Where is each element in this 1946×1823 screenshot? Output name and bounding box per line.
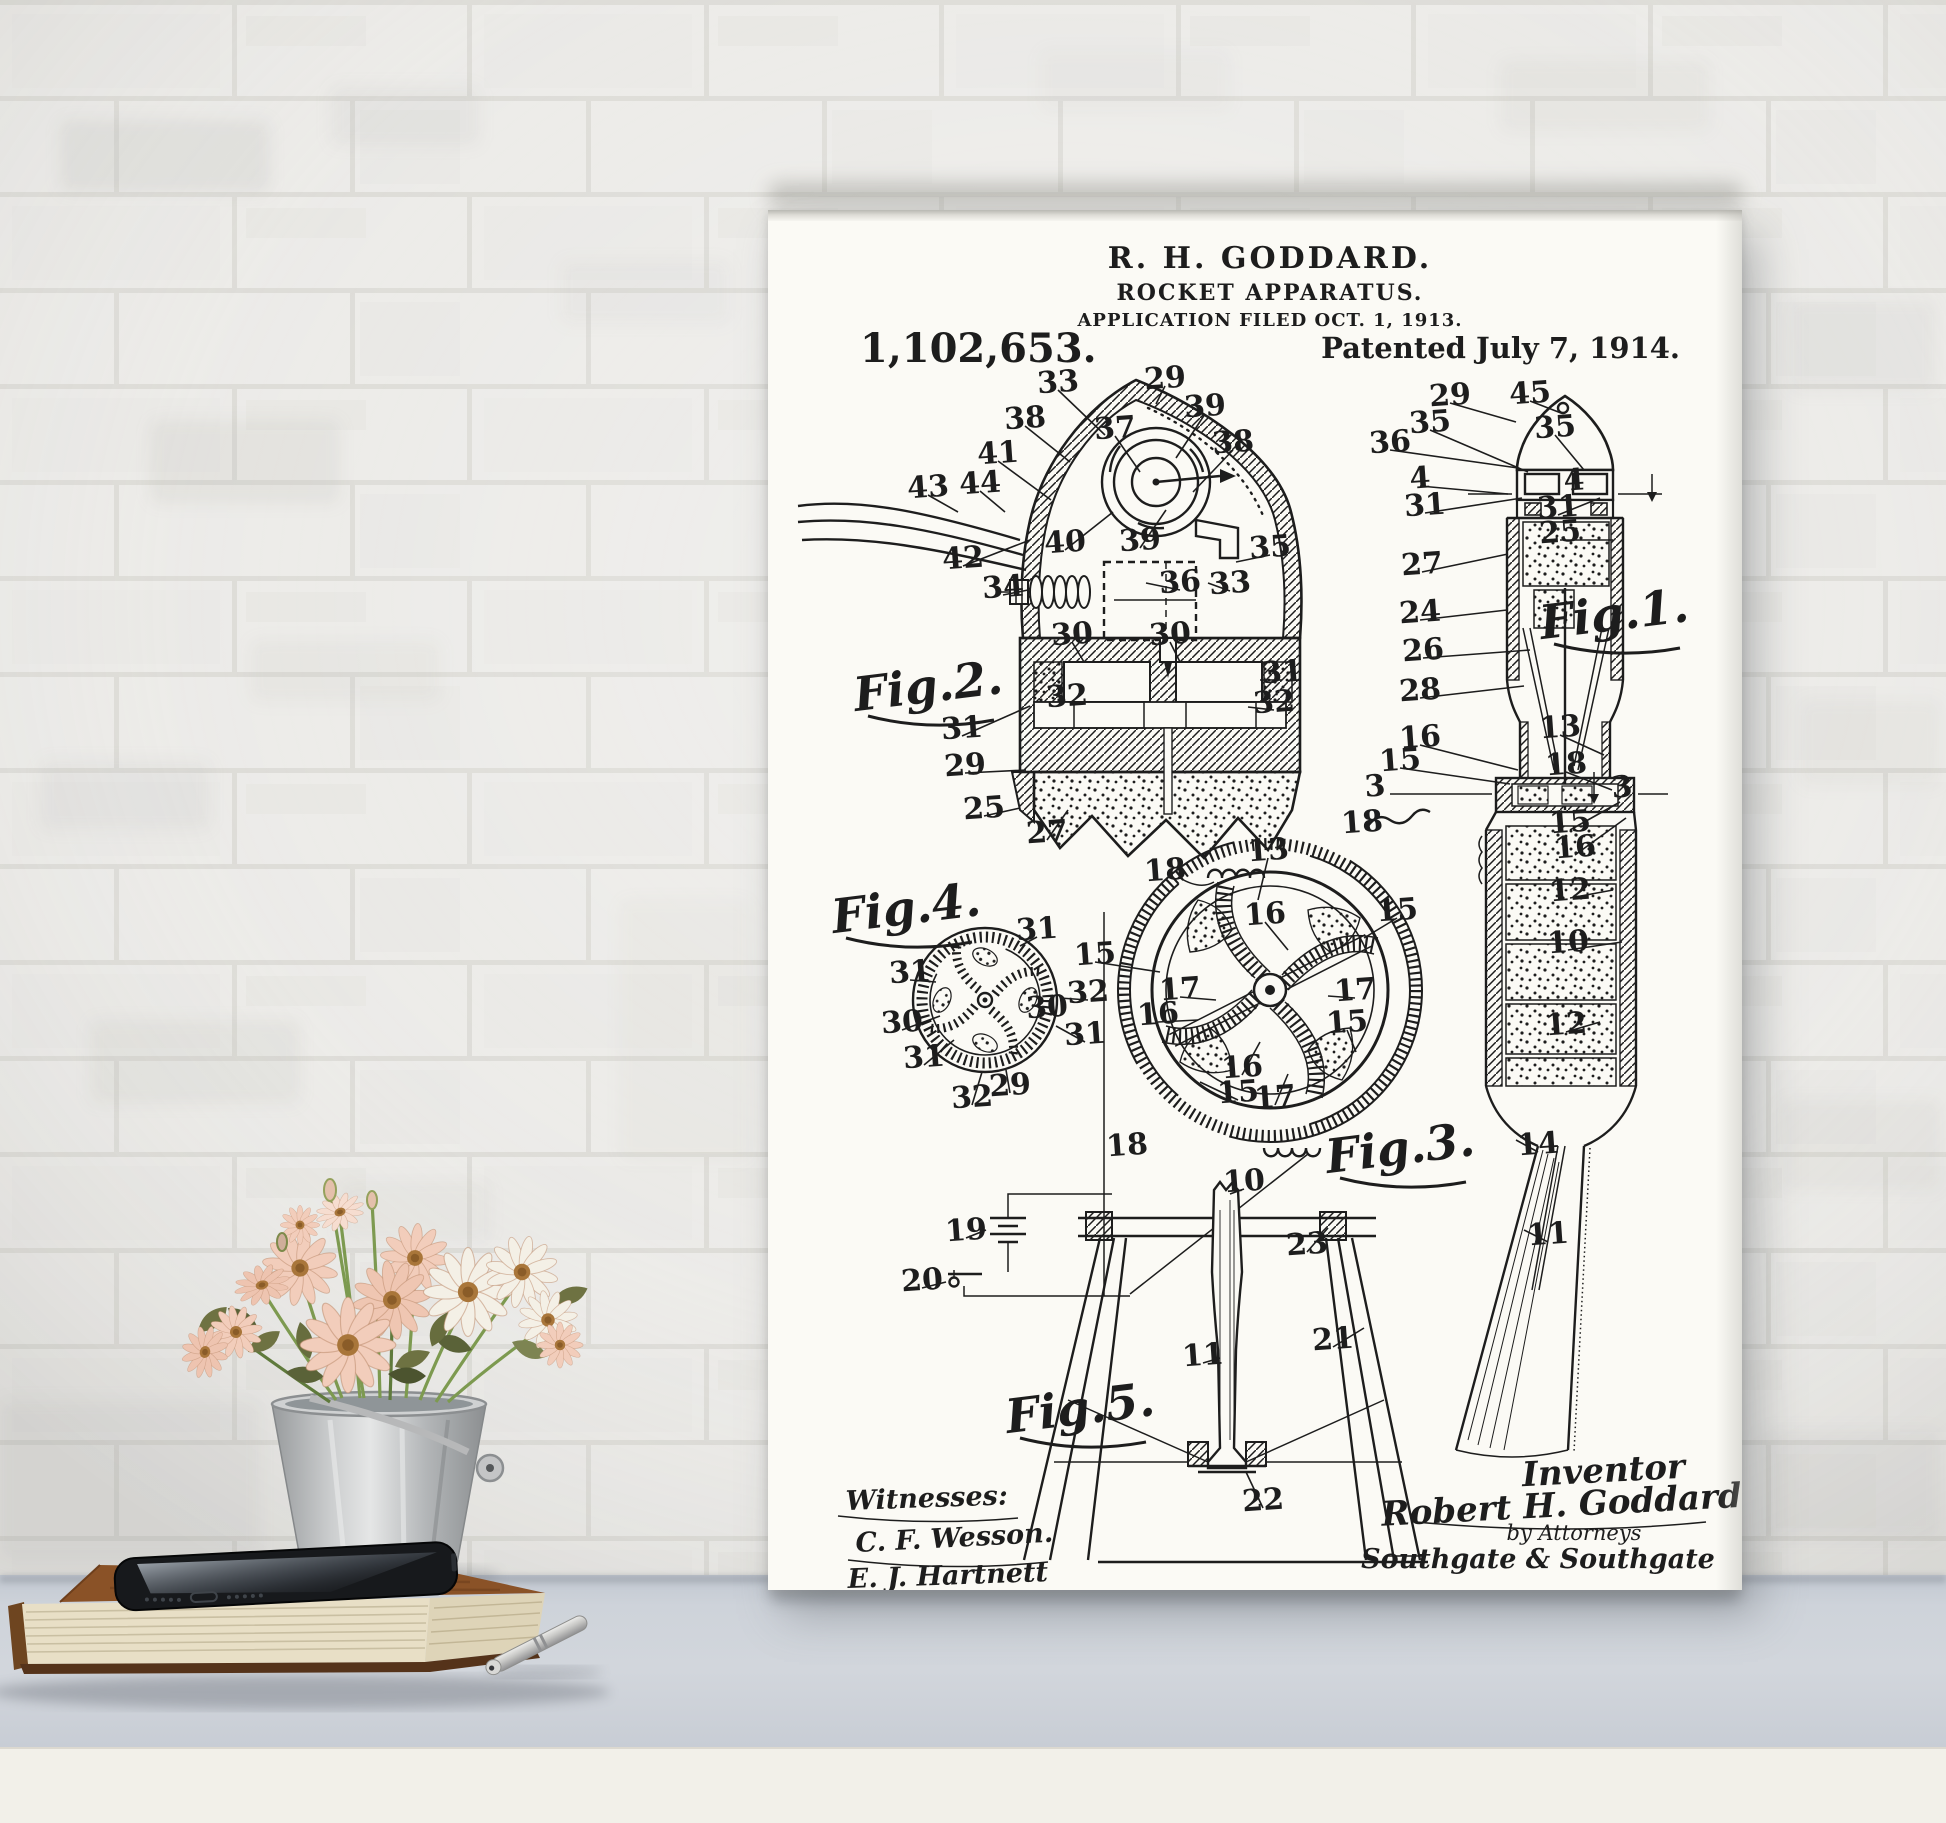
ref-numeral-18: 18 <box>1143 852 1187 890</box>
zinc-bucket <box>272 1392 503 1570</box>
ref-numeral-27: 27 <box>1400 546 1444 584</box>
book-shadow <box>0 1675 610 1709</box>
ref-numeral-34: 34 <box>981 569 1025 607</box>
ref-numeral-29: 29 <box>943 747 987 785</box>
attorney-firm-signature: Southgate & Southgate <box>1361 1544 1715 1575</box>
patent-inventor-line: R. H. GODDARD. <box>1108 241 1432 276</box>
daisy-flowers <box>176 1179 583 1393</box>
ref-numeral-40: 40 <box>1043 524 1087 562</box>
ref-numeral-15: 15 <box>1375 892 1419 930</box>
witnesses-heading: Witnesses: <box>845 1480 1008 1517</box>
ref-numeral-10: 10 <box>1222 1163 1266 1201</box>
ref-numeral-3: 3 <box>1610 769 1633 805</box>
poster-top-shadow <box>768 182 1743 208</box>
ref-numeral-14: 14 <box>1516 1126 1560 1164</box>
ref-numeral-45: 45 <box>1508 375 1552 413</box>
ref-numeral-3: 3 <box>1363 768 1386 804</box>
caption-fig1: Fig.1. <box>1535 578 1692 651</box>
ref-numeral-11: 11 <box>1526 1216 1570 1254</box>
ref-numeral-24: 24 <box>1398 594 1442 632</box>
ref-numeral-30: 30 <box>1050 616 1094 654</box>
patent-drawing: R. H. GODDARD. ROCKET APPARATUS. APPLICA… <box>768 210 1742 1590</box>
caption-fig2: Fig.2. <box>849 650 1006 723</box>
ref-numeral-42: 42 <box>941 540 985 578</box>
ref-numeral-20: 20 <box>900 1262 944 1300</box>
phone-side-button <box>451 1553 457 1571</box>
ref-numeral-16: 16 <box>1136 996 1180 1034</box>
ref-numeral-32: 32 <box>1045 678 1089 716</box>
signature-area: Witnesses: C. F. Wesson. E. J. Hartnett … <box>838 1447 1742 1590</box>
ref-numeral-15: 15 <box>1073 936 1117 974</box>
poster-rolled-edge <box>768 210 1742 221</box>
ref-numeral-22: 22 <box>1241 1482 1285 1520</box>
witness-signature-1: C. F. Wesson. <box>855 1518 1054 1559</box>
ref-numeral-16: 16 <box>1243 896 1287 934</box>
ref-numeral-31: 31 <box>1403 487 1447 525</box>
ref-numeral-38: 38 <box>1211 424 1255 462</box>
ref-numeral-33: 33 <box>1208 565 1252 603</box>
ref-numeral-11: 11 <box>1181 1337 1225 1375</box>
ref-numeral-12: 12 <box>1544 1006 1588 1044</box>
photo-scene: R. H. GODDARD. ROCKET APPARATUS. APPLICA… <box>0 0 1946 1823</box>
ref-numeral-18: 18 <box>1340 804 1384 842</box>
ref-numeral-26: 26 <box>1401 632 1445 670</box>
ref-numeral-31: 31 <box>1063 1016 1107 1054</box>
ref-numeral-29: 29 <box>988 1067 1032 1105</box>
ref-numeral-17: 17 <box>1253 1079 1297 1117</box>
patent-print-poster: R. H. GODDARD. ROCKET APPARATUS. APPLICA… <box>768 210 1742 1590</box>
poster-edge-curl <box>1716 210 1742 1590</box>
ref-numeral-18: 18 <box>1544 746 1588 784</box>
by-attorneys-line: by Attorneys <box>1507 1521 1642 1545</box>
ref-numeral-39: 39 <box>1183 388 1227 426</box>
ref-numeral-19: 19 <box>944 1212 988 1250</box>
ref-numeral-25: 25 <box>962 790 1006 828</box>
ref-numeral-16: 16 <box>1553 829 1597 867</box>
ref-numeral-31: 31 <box>888 954 932 992</box>
ref-numeral-18: 18 <box>1105 1127 1149 1165</box>
flower-bud <box>277 1233 287 1251</box>
patent-header: R. H. GODDARD. ROCKET APPARATUS. APPLICA… <box>860 241 1680 372</box>
ref-numeral-12: 12 <box>1548 872 1592 910</box>
ref-numeral-35: 35 <box>1248 529 1292 567</box>
ref-numeral-31: 31 <box>1015 911 1059 949</box>
ref-numeral-13: 13 <box>1538 709 1582 747</box>
ref-numeral-29: 29 <box>1143 360 1187 398</box>
ref-numeral-23: 23 <box>1285 1226 1329 1264</box>
ref-numeral-32: 32 <box>1252 684 1296 722</box>
ref-numeral-32: 32 <box>1066 974 1110 1012</box>
ref-numeral-10: 10 <box>1546 924 1590 962</box>
ref-numeral-28: 28 <box>1398 672 1442 710</box>
ref-numeral-31: 31 <box>902 1039 946 1077</box>
ref-numeral-15: 15 <box>1325 1004 1369 1042</box>
ref-numeral-35: 35 <box>1408 404 1452 442</box>
patent-filed-line: APPLICATION FILED OCT. 1, 1913. <box>1076 310 1462 331</box>
desk-still-life <box>0 1140 700 1823</box>
ref-numeral-32: 32 <box>950 1079 994 1117</box>
ref-numeral-30: 30 <box>880 1004 924 1042</box>
patent-date: Patented July 7, 1914. <box>1321 331 1680 365</box>
caption-fig5: Fig.5. <box>1001 1372 1158 1445</box>
ref-numeral-31: 31 <box>940 710 984 748</box>
ref-numeral-39: 39 <box>1118 522 1162 560</box>
ref-numeral-25: 25 <box>1538 514 1582 552</box>
ref-numeral-33: 33 <box>1036 364 1080 402</box>
patent-title-line: ROCKET APPARATUS. <box>1117 280 1424 306</box>
ref-numeral-13: 13 <box>1246 832 1290 870</box>
witness-signature-2: E. J. Hartnett <box>846 1557 1049 1590</box>
ref-numeral-30: 30 <box>1148 616 1192 654</box>
ref-numeral-35: 35 <box>1533 409 1577 447</box>
ref-numeral-27: 27 <box>1025 814 1069 852</box>
flower-bud <box>324 1179 336 1201</box>
ref-numeral-36: 36 <box>1368 424 1412 462</box>
ref-numeral-43: 43 <box>906 469 950 507</box>
ref-numeral-37: 37 <box>1093 410 1137 448</box>
ref-numeral-38: 38 <box>1003 400 1047 438</box>
ref-numeral-21: 21 <box>1311 1321 1355 1359</box>
flower-bud <box>367 1191 377 1209</box>
ref-numeral-44: 44 <box>958 465 1002 503</box>
ref-numeral-36: 36 <box>1158 564 1202 602</box>
